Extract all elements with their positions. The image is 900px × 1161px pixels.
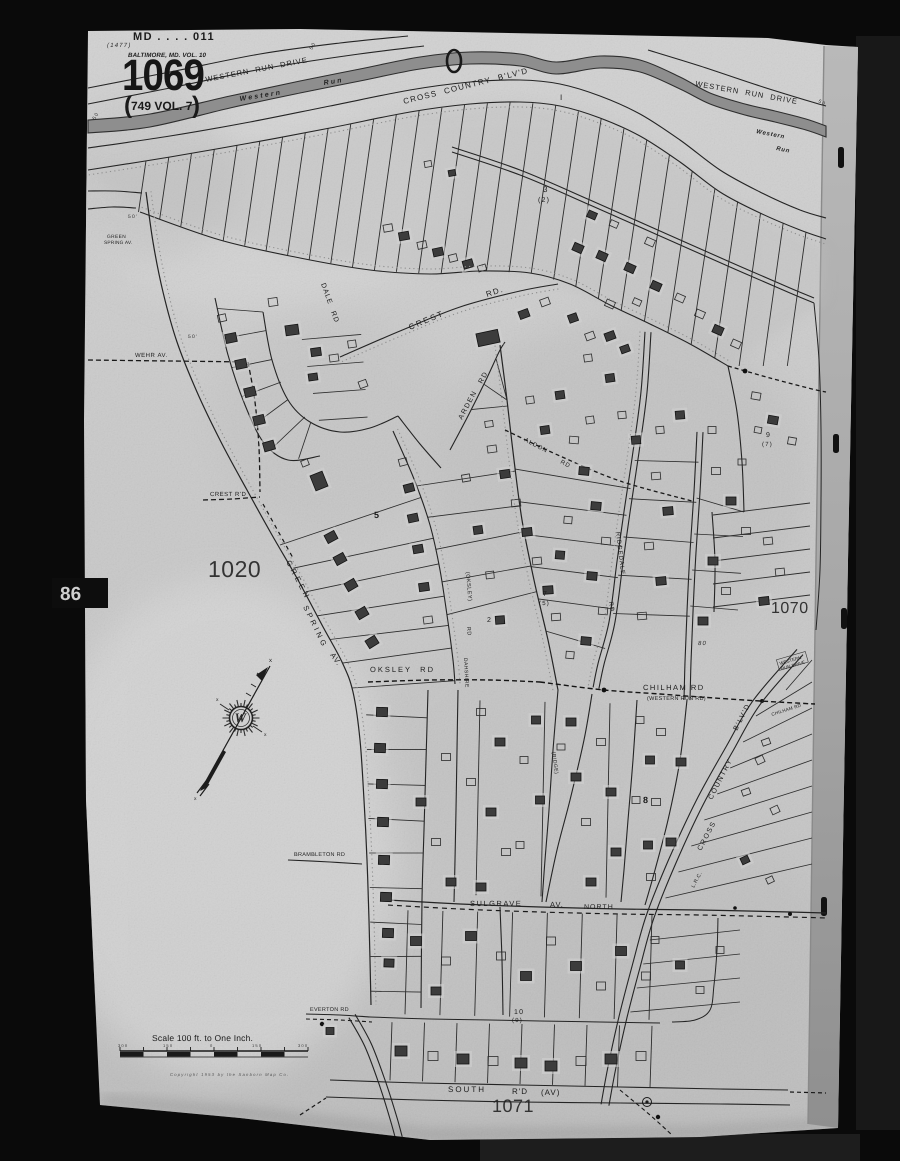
svg-text:(7): (7) bbox=[762, 441, 773, 448]
svg-text:300: 300 bbox=[298, 1043, 308, 1048]
svg-text:1020: 1020 bbox=[208, 556, 261, 582]
svg-text:9: 9 bbox=[766, 432, 771, 439]
svg-text:(WESTERN RUN RD): (WESTERN RUN RD) bbox=[647, 696, 706, 702]
svg-text:0: 0 bbox=[210, 1043, 213, 1048]
svg-text:10: 10 bbox=[514, 1009, 524, 1016]
svg-text:1071: 1071 bbox=[492, 1096, 534, 1116]
svg-text:BRAMBLETON RD: BRAMBLETON RD bbox=[294, 852, 345, 858]
svg-text:AV.: AV. bbox=[550, 900, 564, 909]
svg-text:150: 150 bbox=[163, 1043, 173, 1048]
svg-text:SOUTH: SOUTH bbox=[448, 1085, 486, 1094]
svg-text:SULGRAVE: SULGRAVE bbox=[470, 899, 522, 908]
svg-text:7: 7 bbox=[543, 591, 548, 598]
svg-text:300: 300 bbox=[118, 1043, 128, 1048]
svg-text:Copyright 1953 by the Sanborn: Copyright 1953 by the Sanborn Map Co. bbox=[170, 1072, 289, 1077]
svg-text:(AV): (AV) bbox=[541, 1088, 560, 1097]
svg-text:5: 5 bbox=[374, 510, 380, 520]
svg-text:3: 3 bbox=[543, 185, 549, 194]
svg-text:WEHR AV.: WEHR AV. bbox=[135, 352, 168, 359]
svg-text:CREST R'D: CREST R'D bbox=[210, 491, 246, 498]
svg-text:SPRING AV.: SPRING AV. bbox=[104, 240, 132, 246]
svg-text:150: 150 bbox=[252, 1043, 262, 1048]
svg-text:EVERTON RD: EVERTON RD bbox=[310, 1007, 349, 1013]
svg-text:50': 50' bbox=[188, 334, 198, 340]
svg-text:MD . . . . 011: MD . . . . 011 bbox=[133, 31, 215, 43]
svg-text:x: x bbox=[216, 697, 220, 703]
svg-text:I: I bbox=[560, 93, 563, 102]
svg-text:1070: 1070 bbox=[771, 600, 809, 617]
svg-text:R'D: R'D bbox=[512, 1087, 528, 1096]
svg-text:8: 8 bbox=[643, 795, 649, 805]
svg-text:NORTH: NORTH bbox=[584, 904, 614, 911]
svg-text:Scale 100 ft. to One Inch.: Scale 100 ft. to One Inch. bbox=[152, 1033, 253, 1043]
svg-text:x: x bbox=[194, 796, 198, 802]
svg-text:2: 2 bbox=[487, 617, 492, 624]
svg-text:(2): (2) bbox=[538, 196, 550, 204]
svg-text:86: 86 bbox=[60, 584, 81, 605]
svg-text:50': 50' bbox=[128, 214, 138, 220]
svg-text:OKSLEY RD: OKSLEY RD bbox=[370, 665, 435, 674]
svg-text:(1477): (1477) bbox=[107, 42, 132, 49]
svg-text:(9): (9) bbox=[512, 1017, 523, 1024]
svg-text:x: x bbox=[269, 658, 273, 664]
svg-text:x: x bbox=[264, 732, 268, 738]
svg-text:): ) bbox=[192, 92, 200, 119]
svg-text:GREEN: GREEN bbox=[107, 234, 126, 240]
svg-text:RD: RD bbox=[465, 627, 472, 636]
svg-text:CHILHAM RD: CHILHAM RD bbox=[643, 683, 705, 692]
svg-text:749 VOL. 7: 749 VOL. 7 bbox=[131, 99, 193, 113]
svg-text:80: 80 bbox=[698, 640, 707, 647]
svg-text:(5): (5) bbox=[539, 600, 550, 607]
